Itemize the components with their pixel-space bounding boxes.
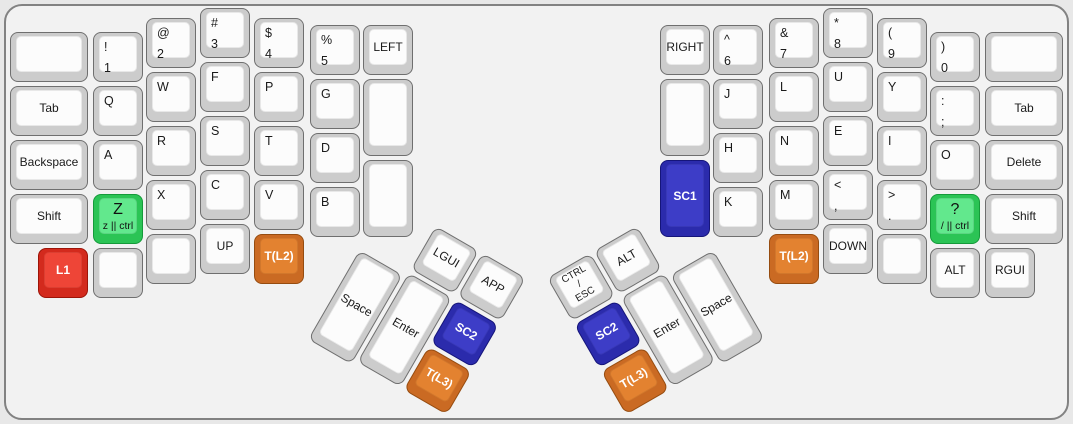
key-label: Tab (992, 91, 1056, 125)
keycap-surface: Q (99, 90, 137, 126)
key-label: ^6 (720, 30, 756, 72)
key-label-line: 1 (104, 58, 136, 79)
key-label: L1 (45, 253, 81, 287)
key-l1[interactable]: L1 (38, 248, 88, 298)
key-right-key[interactable]: RIGHT (660, 25, 710, 75)
key-label-line: & (780, 23, 812, 44)
key-label-line: 5 (321, 51, 353, 72)
key-g[interactable]: G (310, 79, 360, 129)
key-label: >. (884, 185, 920, 227)
key-label-line: S (211, 121, 243, 142)
key-num-9[interactable]: (9 (877, 18, 927, 68)
key-r[interactable]: R (146, 126, 196, 176)
key-label: @2 (153, 23, 189, 65)
keycap-surface: O (936, 144, 974, 180)
keycap-surface: Backspace (16, 144, 82, 180)
keycap-surface: T(L2) (260, 238, 298, 274)
key-label: #3 (207, 13, 243, 55)
key-label: S (207, 121, 243, 142)
key-label: :; (937, 91, 973, 133)
key-label-line: X (157, 185, 189, 206)
keycap-surface: ALT (936, 252, 974, 288)
key-label: Backspace (17, 145, 81, 179)
key-label-line: L (780, 77, 812, 98)
keycap-surface: T (260, 130, 298, 166)
keycap-surface: Y (883, 76, 921, 112)
key-label: $4 (261, 23, 297, 65)
key-label: ALT (937, 253, 973, 287)
key-label: K (720, 192, 756, 213)
key-backspace[interactable]: Backspace (10, 140, 88, 190)
key-label-line: , (834, 196, 866, 217)
key-t-l2-left[interactable]: T(L2) (254, 234, 304, 284)
key-b[interactable]: B (310, 187, 360, 237)
key-label: G (317, 84, 353, 105)
key-label-line: $ (265, 23, 297, 44)
key-label: *8 (830, 13, 866, 55)
key-label: !1 (100, 37, 136, 79)
key-s[interactable]: S (200, 116, 250, 166)
key-label: Y (884, 77, 920, 98)
keycap-surface: Tab (16, 90, 82, 126)
key-label: Shift (992, 199, 1056, 233)
key-num-6[interactable]: ^6 (713, 25, 763, 75)
key-blank-right-col4[interactable] (877, 234, 927, 284)
key-rgui[interactable]: RGUI (985, 248, 1035, 298)
keycap-surface: Zz || ctrl (99, 198, 137, 234)
keycap-surface: <, (829, 174, 867, 210)
key-v[interactable]: V (254, 180, 304, 230)
keycap-surface: U (829, 66, 867, 102)
keycap-surface: Delete (991, 144, 1057, 180)
keycap-surface: RIGHT (666, 29, 704, 65)
key-label: D (317, 138, 353, 159)
key-label-line: . (888, 206, 920, 227)
key-label-line: G (321, 84, 353, 105)
key-blank-left-inner2[interactable] (363, 160, 413, 237)
key-blank-left-inner1[interactable] (363, 79, 413, 156)
key-blank-left-col2[interactable] (146, 234, 196, 284)
key-delete[interactable]: Delete (985, 140, 1063, 190)
key-i[interactable]: I (877, 126, 927, 176)
key-label-line: V (265, 185, 297, 206)
keycap-surface: T(L2) (775, 238, 813, 274)
key-label-line: T (265, 131, 297, 152)
key-label-line: Y (888, 77, 920, 98)
key-label: <, (830, 175, 866, 217)
keycap-surface: Shift (16, 198, 82, 234)
key-q[interactable]: Q (93, 86, 143, 136)
key-label-line: ( (888, 23, 920, 44)
keycap-surface (369, 83, 407, 146)
keycap-surface: ?/ || ctrl (936, 198, 974, 234)
key-num-7[interactable]: &7 (769, 18, 819, 68)
key-label: T(L2) (261, 239, 297, 273)
key-label-line: B (321, 192, 353, 213)
key-tab-left[interactable]: Tab (10, 86, 88, 136)
key-label: N (776, 131, 812, 152)
key-label-line: E (834, 121, 866, 142)
key-label: RIGHT (667, 30, 703, 64)
key-blank-left-col1[interactable] (93, 248, 143, 298)
key-label-line: P (265, 77, 297, 98)
key-y[interactable]: Y (877, 72, 927, 122)
key-z[interactable]: Zz || ctrl (93, 194, 143, 244)
key-label: UP (207, 229, 243, 263)
keycap-surface: Shift (991, 198, 1057, 234)
key-label: Tab (17, 91, 81, 125)
key-label-line: > (888, 185, 920, 206)
key-label-line: ; (941, 112, 973, 133)
key-label-primary: Z (100, 200, 136, 219)
keycap-surface: F (206, 66, 244, 102)
key-label: E (830, 121, 866, 142)
key-label-line: D (321, 138, 353, 159)
key-label-line: 0 (941, 58, 973, 79)
keycap-surface: (9 (883, 22, 921, 58)
key-f[interactable]: F (200, 62, 250, 112)
key-o[interactable]: O (930, 140, 980, 190)
key-label-line: : (941, 91, 973, 112)
keycap-surface: H (719, 137, 757, 173)
key-label-line: 9 (888, 44, 920, 65)
key-p[interactable]: P (254, 72, 304, 122)
keycap-surface: C (206, 174, 244, 210)
key-label: W (153, 77, 189, 98)
key-label: C (207, 175, 243, 196)
keycap-surface: D (316, 137, 354, 173)
keycap-surface: RGUI (991, 252, 1029, 288)
key-n[interactable]: N (769, 126, 819, 176)
key-label: )0 (937, 37, 973, 79)
key-num-8[interactable]: *8 (823, 8, 873, 58)
key-tab-right[interactable]: Tab (985, 86, 1063, 136)
key-a[interactable]: A (93, 140, 143, 190)
key-w[interactable]: W (146, 72, 196, 122)
key-d[interactable]: D (310, 133, 360, 183)
keycap-surface: B (316, 191, 354, 227)
keycap-surface: I (883, 130, 921, 166)
keycap-surface: >. (883, 184, 921, 220)
key-t-l2-right[interactable]: T(L2) (769, 234, 819, 284)
key-label-line: % (321, 30, 353, 51)
keycap-surface: *8 (829, 12, 867, 48)
key-label: T(L2) (776, 239, 812, 273)
keycap-surface: G (316, 83, 354, 119)
keycap-surface: &7 (775, 22, 813, 58)
keycap-surface: N (775, 130, 813, 166)
key-label-line: 8 (834, 34, 866, 55)
key-k[interactable]: K (713, 187, 763, 237)
key-label-line: W (157, 77, 189, 98)
key-label: (9 (884, 23, 920, 65)
keycap-surface: X (152, 184, 190, 220)
key-label: DOWN (830, 229, 866, 263)
keycap-surface: SC1 (666, 164, 704, 227)
key-t[interactable]: T (254, 126, 304, 176)
key-label: M (776, 185, 812, 206)
key-label: J (720, 84, 756, 105)
keycap-surface: !1 (99, 36, 137, 72)
key-down[interactable]: DOWN (823, 224, 873, 274)
key-h[interactable]: H (713, 133, 763, 183)
key-num-3[interactable]: #3 (200, 8, 250, 58)
key-blank-right-inner[interactable] (660, 79, 710, 156)
key-label: L (776, 77, 812, 98)
key-label: ?/ || ctrl (937, 199, 973, 233)
key-label: P (261, 77, 297, 98)
key-label: T (261, 131, 297, 152)
key-label: V (261, 185, 297, 206)
keycap-surface: P (260, 76, 298, 112)
key-label: SC1 (667, 165, 703, 226)
keycap-surface (369, 164, 407, 227)
keycap-surface: W (152, 76, 190, 112)
key-label: U (830, 67, 866, 88)
key-label-line: 7 (780, 44, 812, 65)
keycap-surface (666, 83, 704, 146)
keycap-surface: )0 (936, 36, 974, 72)
key-label-line: # (211, 13, 243, 34)
key-label: F (207, 67, 243, 88)
key-label: A (100, 145, 136, 166)
key-label: X (153, 185, 189, 206)
keycap-surface: V (260, 184, 298, 220)
key-label: T(L3) (610, 354, 658, 401)
key-j[interactable]: J (713, 79, 763, 129)
key-label-line: 4 (265, 44, 297, 65)
key-alt-right[interactable]: ALT (930, 248, 980, 298)
key-label-line: R (157, 131, 189, 152)
key-label: RGUI (992, 253, 1028, 287)
key-label-line: N (780, 131, 812, 152)
key-label-line: U (834, 67, 866, 88)
key-label-line: 2 (157, 44, 189, 65)
key-label: O (937, 145, 973, 166)
keycap-surface (991, 36, 1057, 72)
key-label-line: ) (941, 37, 973, 58)
key-label-line: 3 (211, 34, 243, 55)
key-label: B (317, 192, 353, 213)
key-up[interactable]: UP (200, 224, 250, 274)
keycap-surface: %5 (316, 29, 354, 65)
keycap-surface: #3 (206, 12, 244, 48)
keycap-surface: R (152, 130, 190, 166)
keycap-surface: UP (206, 228, 244, 264)
key-num-0[interactable]: )0 (930, 32, 980, 82)
key-u[interactable]: U (823, 62, 873, 112)
key-label: CTRL/ESC (556, 260, 604, 307)
keycap-surface: $4 (260, 22, 298, 58)
key-label-line: 6 (724, 51, 756, 72)
key-x[interactable]: X (146, 180, 196, 230)
key-label: Delete (992, 145, 1056, 179)
key-period[interactable]: >. (877, 180, 927, 230)
key-label-line: * (834, 13, 866, 34)
key-label-line: F (211, 67, 243, 88)
key-question[interactable]: ?/ || ctrl (930, 194, 980, 244)
keycap-surface: A (99, 144, 137, 180)
keycap-surface: K (719, 191, 757, 227)
key-num-2[interactable]: @2 (146, 18, 196, 68)
key-num-4[interactable]: $4 (254, 18, 304, 68)
key-label-line: Q (104, 91, 136, 112)
keycap-surface: @2 (152, 22, 190, 58)
key-label: R (153, 131, 189, 152)
keycap-surface: L (775, 76, 813, 112)
key-label-secondary: / || ctrl (937, 220, 973, 232)
key-blank-top-left[interactable] (10, 32, 88, 82)
keycap-surface: S (206, 120, 244, 156)
key-e[interactable]: E (823, 116, 873, 166)
keycap-surface: L1 (44, 252, 82, 288)
key-label: SC2 (583, 307, 631, 354)
keycap-surface: :; (936, 90, 974, 126)
key-label: Shift (17, 199, 81, 233)
key-c[interactable]: C (200, 170, 250, 220)
key-label-line: K (724, 192, 756, 213)
key-label: Zz || ctrl (100, 199, 136, 233)
key-label-line: A (104, 145, 136, 166)
key-label: %5 (317, 30, 353, 72)
key-label-line: J (724, 84, 756, 105)
key-semicolon[interactable]: :; (930, 86, 980, 136)
key-shift-right[interactable]: Shift (985, 194, 1063, 244)
key-label-line: M (780, 185, 812, 206)
key-shift-left[interactable]: Shift (10, 194, 88, 244)
keycap-surface (99, 252, 137, 288)
keycap-surface: Tab (991, 90, 1057, 126)
key-m[interactable]: M (769, 180, 819, 230)
key-blank-top-right[interactable] (985, 32, 1063, 82)
keycap-surface (16, 36, 82, 72)
keycap-surface (152, 238, 190, 274)
key-l[interactable]: L (769, 72, 819, 122)
key-left-key[interactable]: LEFT (363, 25, 413, 75)
key-label-secondary: z || ctrl (100, 220, 136, 232)
key-label-line: ^ (724, 30, 756, 51)
key-label: H (720, 138, 756, 159)
key-label-line: @ (157, 23, 189, 44)
key-sc1[interactable]: SC1 (660, 160, 710, 237)
key-label-line: ESC (574, 284, 598, 304)
key-label: LEFT (370, 30, 406, 64)
keycap-surface: DOWN (829, 228, 867, 264)
key-comma[interactable]: <, (823, 170, 873, 220)
key-label-line: ! (104, 37, 136, 58)
keyboard-layout-canvas: TabBackspaceShiftL1!1QAZz || ctrl@2WRX#3… (0, 0, 1073, 424)
key-num-5[interactable]: %5 (310, 25, 360, 75)
key-label-primary: ? (937, 200, 973, 219)
key-label-line: < (834, 175, 866, 196)
key-label: Q (100, 91, 136, 112)
key-label: I (884, 131, 920, 152)
keycap-surface: J (719, 83, 757, 119)
key-num-1[interactable]: !1 (93, 32, 143, 82)
key-label-line: O (941, 145, 973, 166)
keycap-surface: E (829, 120, 867, 156)
key-label-line: I (888, 131, 920, 152)
keycap-surface: ^6 (719, 29, 757, 65)
key-label-line: H (724, 138, 756, 159)
key-label: &7 (776, 23, 812, 65)
keycap-surface: M (775, 184, 813, 220)
key-label-line: C (211, 175, 243, 196)
keycap-surface (883, 238, 921, 274)
keycap-surface: LEFT (369, 29, 407, 65)
key-label: ALT (603, 233, 651, 280)
